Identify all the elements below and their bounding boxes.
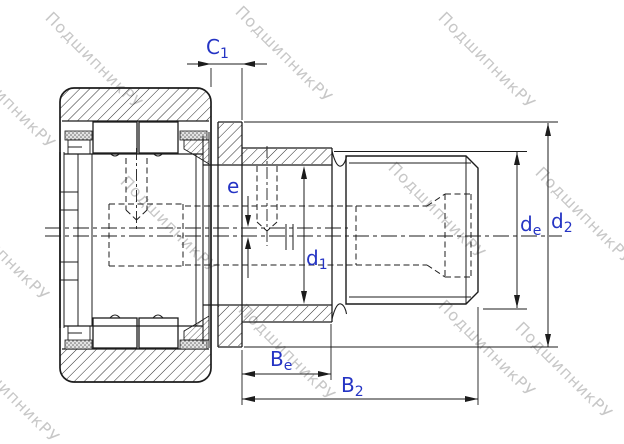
dimension-labels: C1 e d1 de d2 Be B2 [0,0,624,444]
dimension-label-be: Be [270,349,292,373]
dimension-label-e: e [227,176,239,200]
technical-drawing-canvas: ПодшипникРУ ПодшипникРУ ПодшипникРУ Подш… [0,0,624,444]
dimension-label-d2: d2 [551,211,573,235]
dimension-label-d1: d1 [306,248,328,272]
dimension-label-de: de [520,214,541,238]
dimension-label-c1: C1 [206,37,229,61]
dimension-label-b2: B2 [341,375,364,399]
